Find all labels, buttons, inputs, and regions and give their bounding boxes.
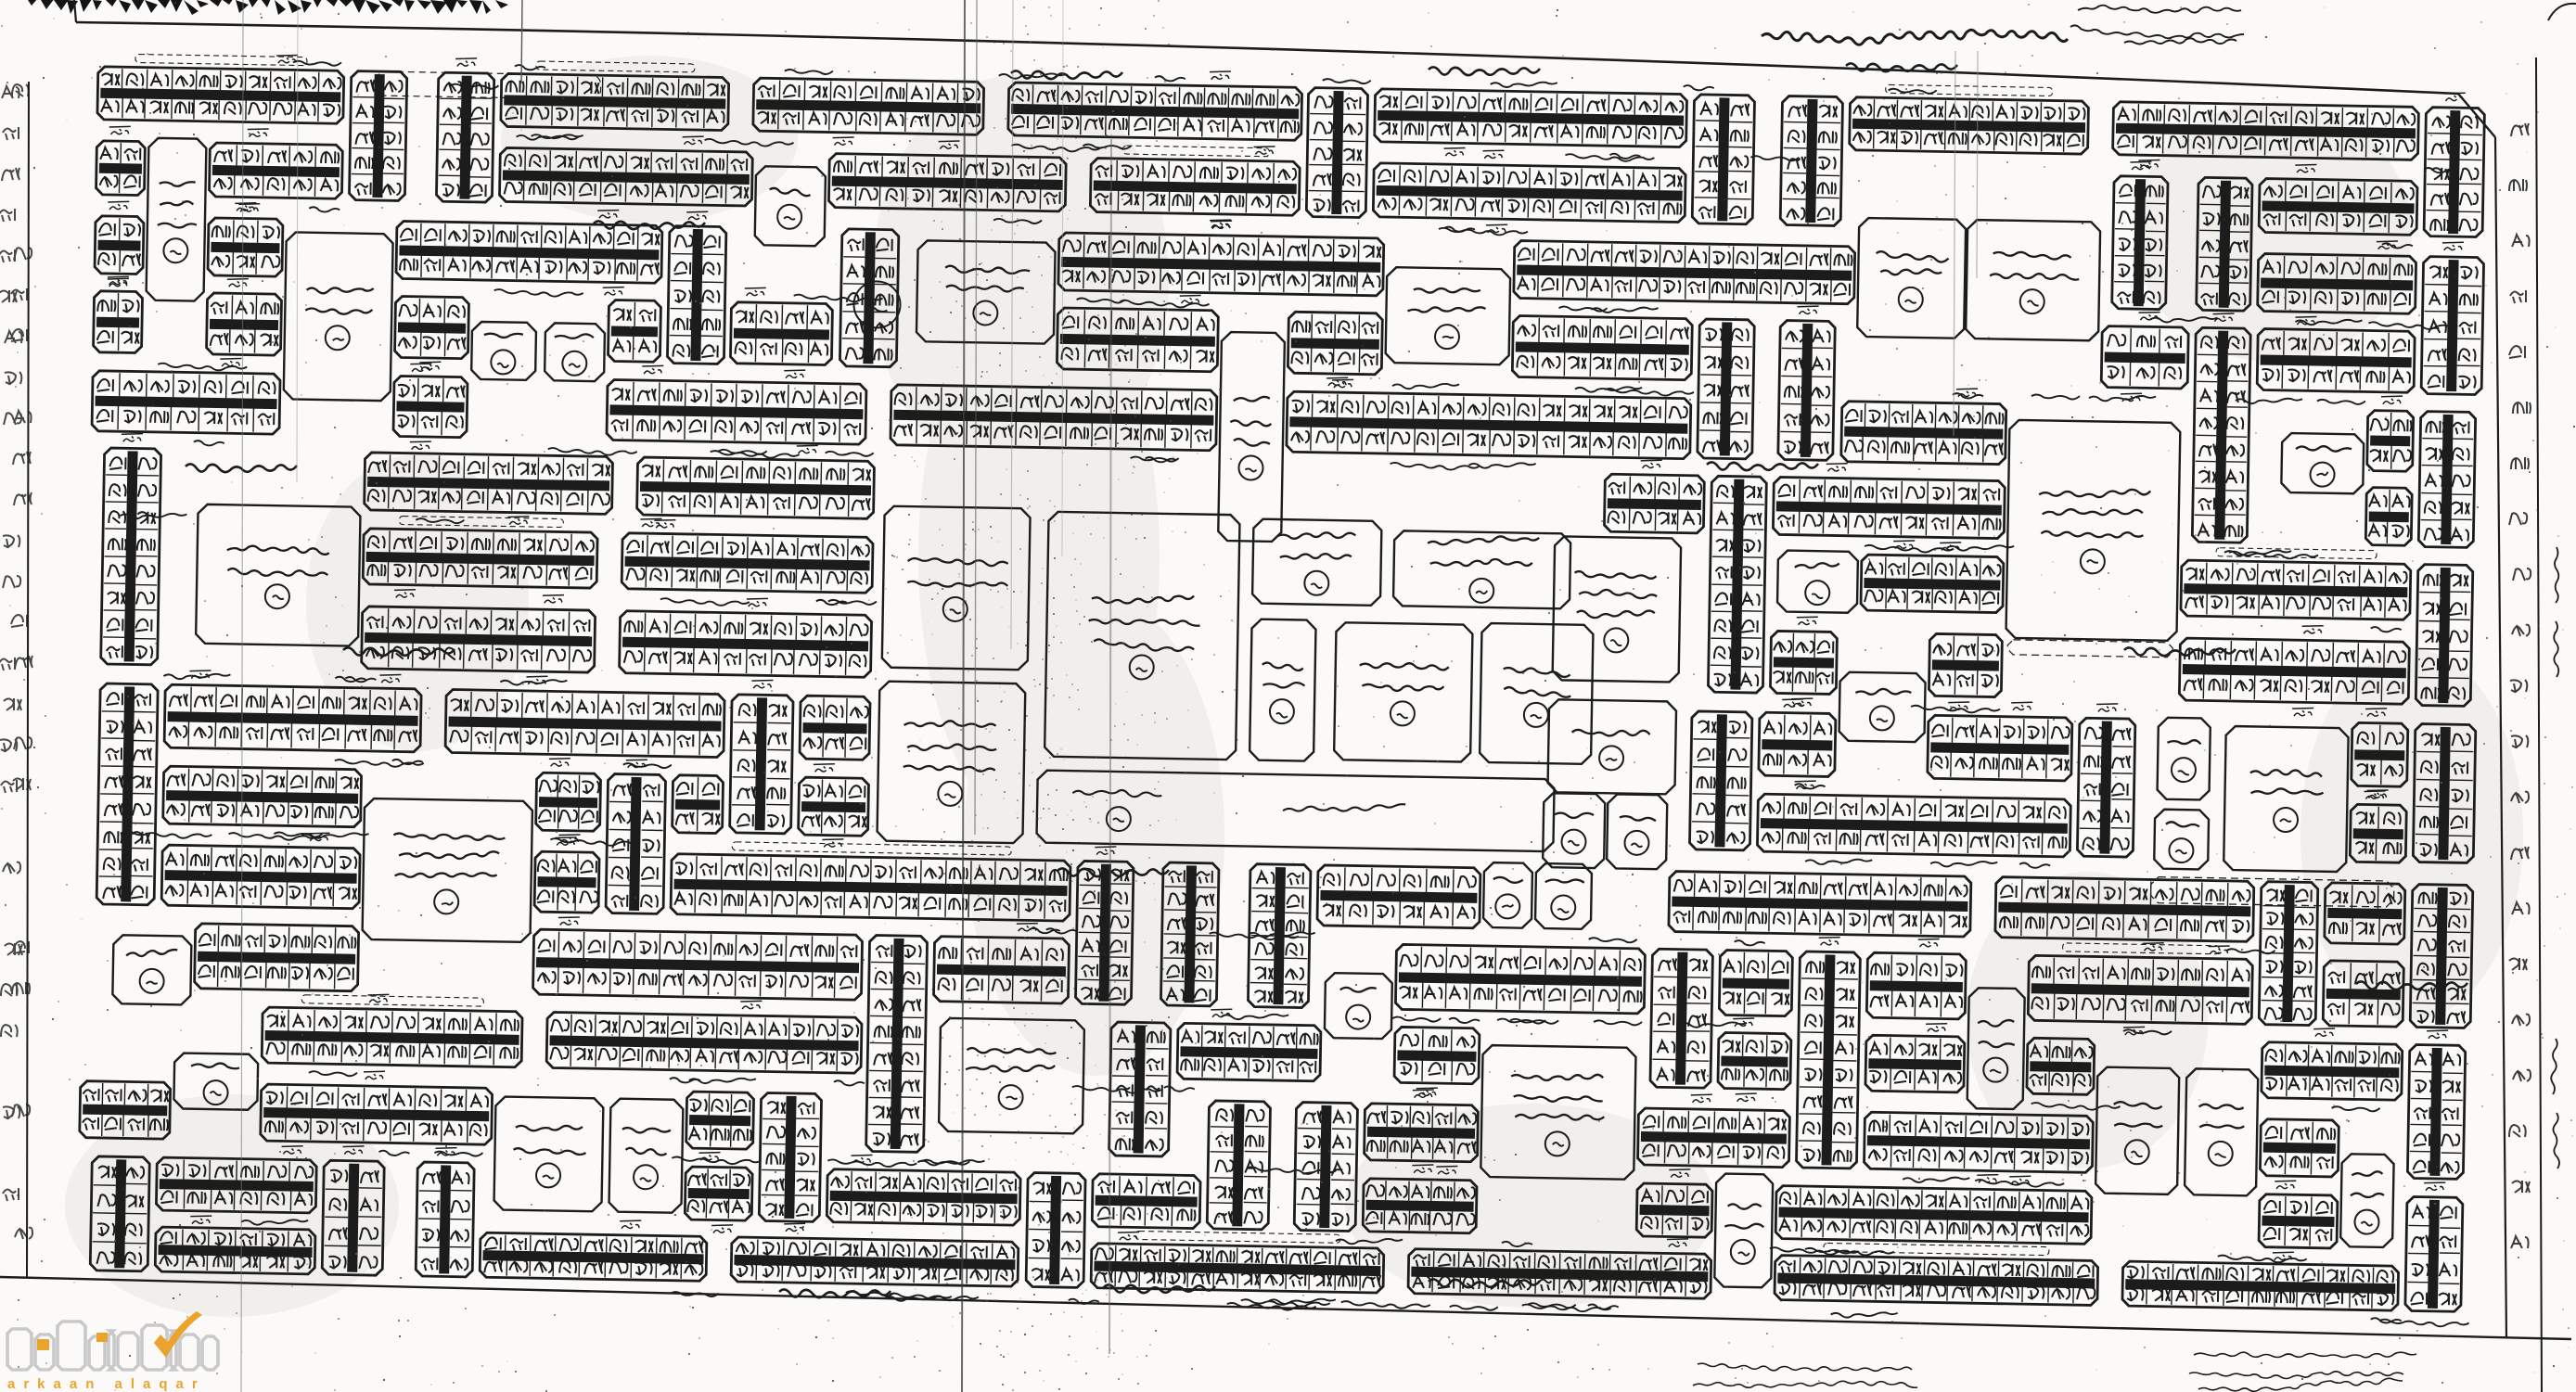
svg-text:arkaan alaqar: arkaan alaqar (7, 1376, 206, 1392)
